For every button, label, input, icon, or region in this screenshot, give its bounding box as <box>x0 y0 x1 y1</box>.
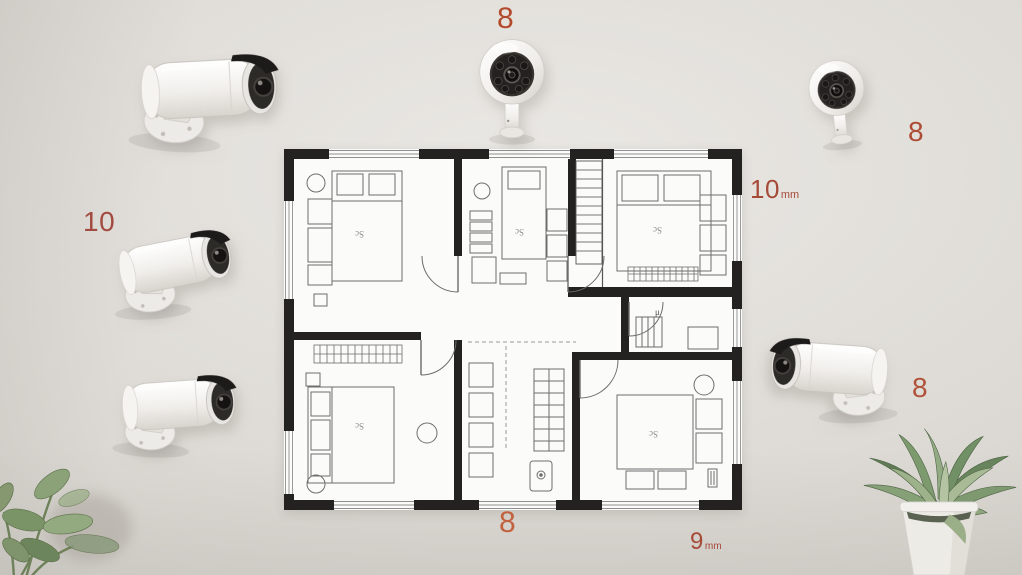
count-label-left: 10 <box>83 208 115 236</box>
dimension-unit: mm <box>705 541 722 552</box>
camera-top-left <box>114 22 303 164</box>
dimension-value: 10 <box>750 174 780 204</box>
stair-label: μ <box>655 307 660 317</box>
count-label-bottom-center: 8 <box>499 508 516 538</box>
count-label-right: 8 <box>912 374 928 402</box>
camera-left-middle <box>96 208 253 326</box>
dimension-unit: mm <box>781 189 799 201</box>
plant-bottom-right <box>856 420 1022 575</box>
count-label-top-center: 8 <box>497 4 514 34</box>
camera-right-bottom <box>749 312 911 432</box>
dimension-value: 9 <box>690 528 704 555</box>
floor-plan: Sc Sc Sc Sc Sc μ <box>284 149 742 510</box>
floor-plan-drawing: Sc Sc Sc Sc Sc μ <box>284 149 742 510</box>
dimension-label-bottom: 9mm <box>690 530 722 554</box>
camera-top-right <box>787 49 889 156</box>
count-label-top-right: 8 <box>908 118 924 146</box>
camera-top-center <box>462 32 562 147</box>
room-label: Sc <box>649 429 658 439</box>
plant-bottom-left <box>0 428 140 575</box>
room-label: Sc <box>355 229 364 239</box>
room-label: Sc <box>355 421 364 431</box>
dimension-label-top-right: 10mm <box>750 176 799 202</box>
room-label: Sc <box>515 227 524 237</box>
room-label: Sc <box>653 225 662 235</box>
security-camera-wall-scene: Sc Sc Sc Sc Sc μ 8 8 10 8 8 10mm 9mm <box>0 0 1022 575</box>
